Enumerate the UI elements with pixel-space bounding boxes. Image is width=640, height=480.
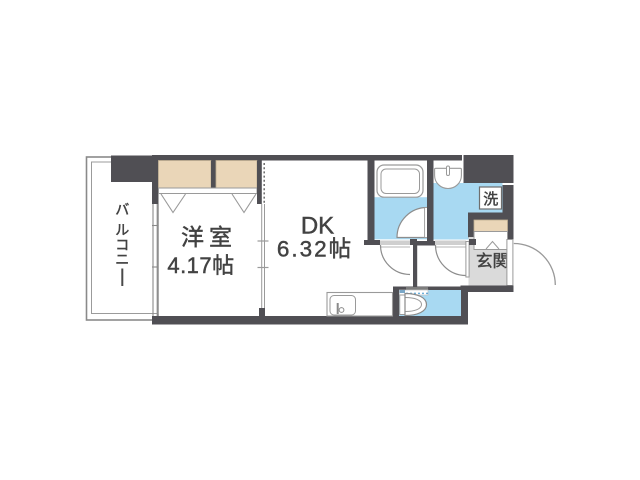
svg-text:ル: ル <box>115 222 129 238</box>
svg-text:洗: 洗 <box>483 191 498 208</box>
svg-text:ニ: ニ <box>115 252 129 268</box>
svg-text:玄関: 玄関 <box>476 252 509 271</box>
svg-text:洋室: 洋室 <box>181 224 237 250</box>
svg-text:DK: DK <box>301 213 334 240</box>
svg-text:6.32帖: 6.32帖 <box>277 237 353 262</box>
svg-text:バ: バ <box>115 202 129 218</box>
svg-text:4.17帖: 4.17帖 <box>167 253 234 278</box>
